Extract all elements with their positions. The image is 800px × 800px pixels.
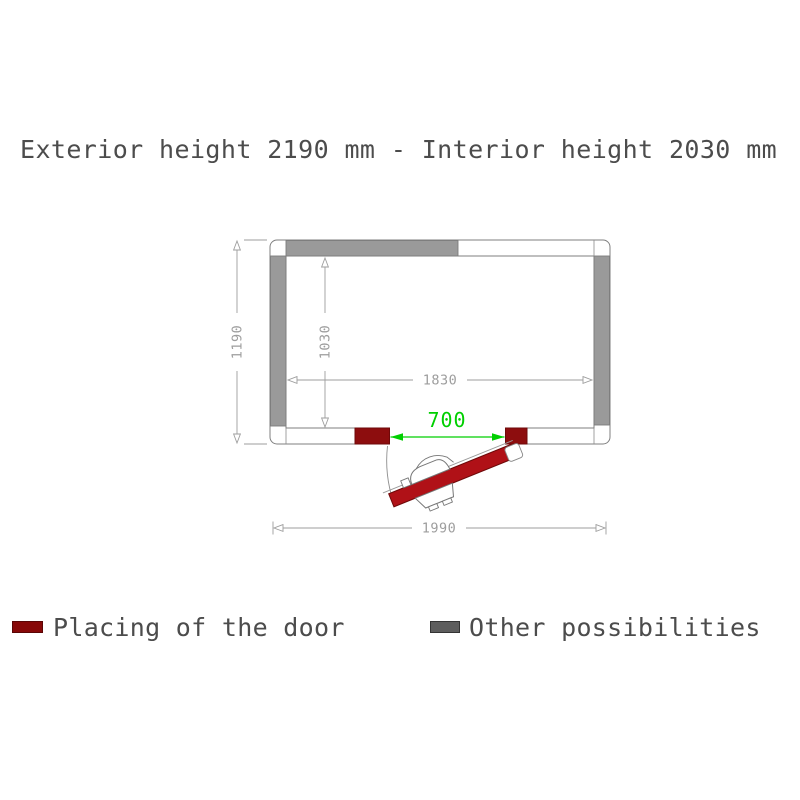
- arrow-down-icon: [234, 434, 241, 443]
- legend-item-other-possibilities: Other possibilities: [430, 614, 761, 640]
- other-possibilities-swatch-icon: [430, 621, 460, 633]
- legend-label-door-placing: Placing of the door: [53, 613, 345, 642]
- legend-item-door-placing: Placing of the door: [12, 614, 345, 640]
- door-frame-block-left: [355, 428, 390, 444]
- red-swatch: [13, 622, 43, 633]
- arrow-right-icon: [596, 525, 605, 532]
- gray-wall-segment-right: [594, 256, 610, 425]
- gray-swatch: [431, 622, 460, 633]
- door-frame-block-right: [506, 428, 528, 444]
- door-placing-swatch-icon: [12, 621, 43, 633]
- diagram-canvas: Exterior height 2190 mm - Interior heigh…: [0, 0, 800, 800]
- gray-wall-segment-left: [271, 256, 287, 426]
- dim-label-door-opening: 700: [427, 408, 466, 432]
- arrow-left-icon: [274, 525, 283, 532]
- dim-label-interior-width: 1830: [423, 373, 458, 389]
- floor-plan-drawing: 1190 1030 1830 700 1990: [0, 0, 800, 800]
- legend-label-other-possibilities: Other possibilities: [469, 613, 761, 642]
- dim-label-exterior-width: 1990: [422, 521, 457, 537]
- arrow-up-icon: [234, 241, 241, 250]
- dim-label-interior-depth: 1030: [318, 325, 334, 360]
- gray-wall-segment-top: [286, 241, 458, 257]
- dim-label-exterior-depth: 1190: [230, 325, 246, 360]
